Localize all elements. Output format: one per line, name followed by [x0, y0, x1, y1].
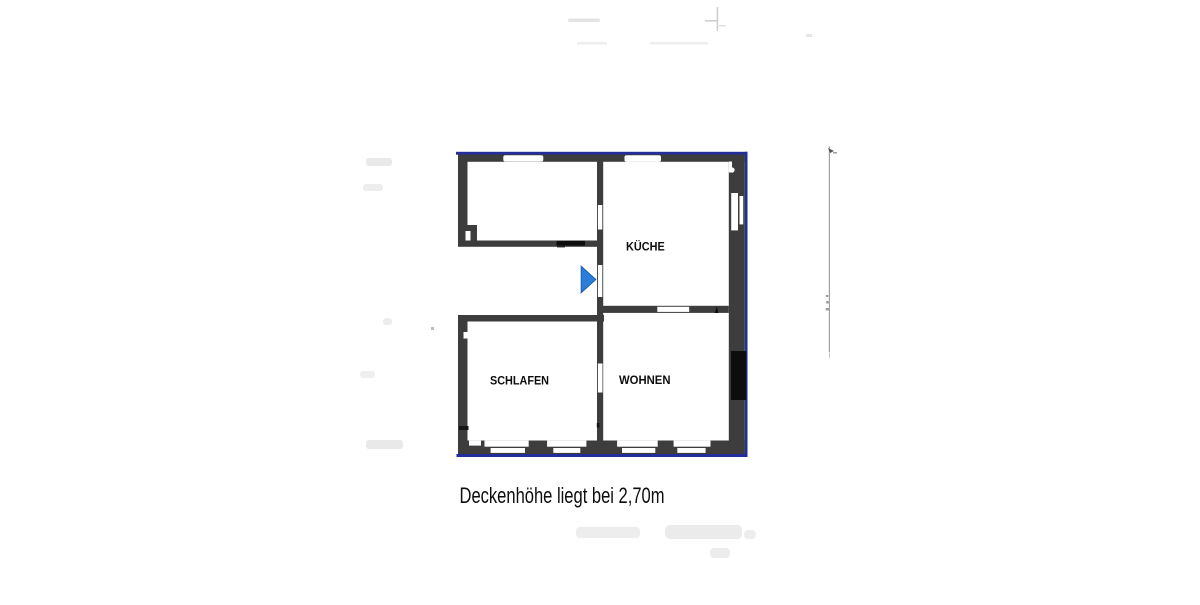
svg-text:SCHLAFEN: SCHLAFEN — [490, 374, 549, 388]
svg-text:Deckenhöhe liegt bei 2,70m: Deckenhöhe liegt bei 2,70m — [460, 483, 665, 508]
svg-text:WOHNEN: WOHNEN — [619, 373, 671, 387]
svg-text:KÜCHE: KÜCHE — [626, 241, 665, 254]
